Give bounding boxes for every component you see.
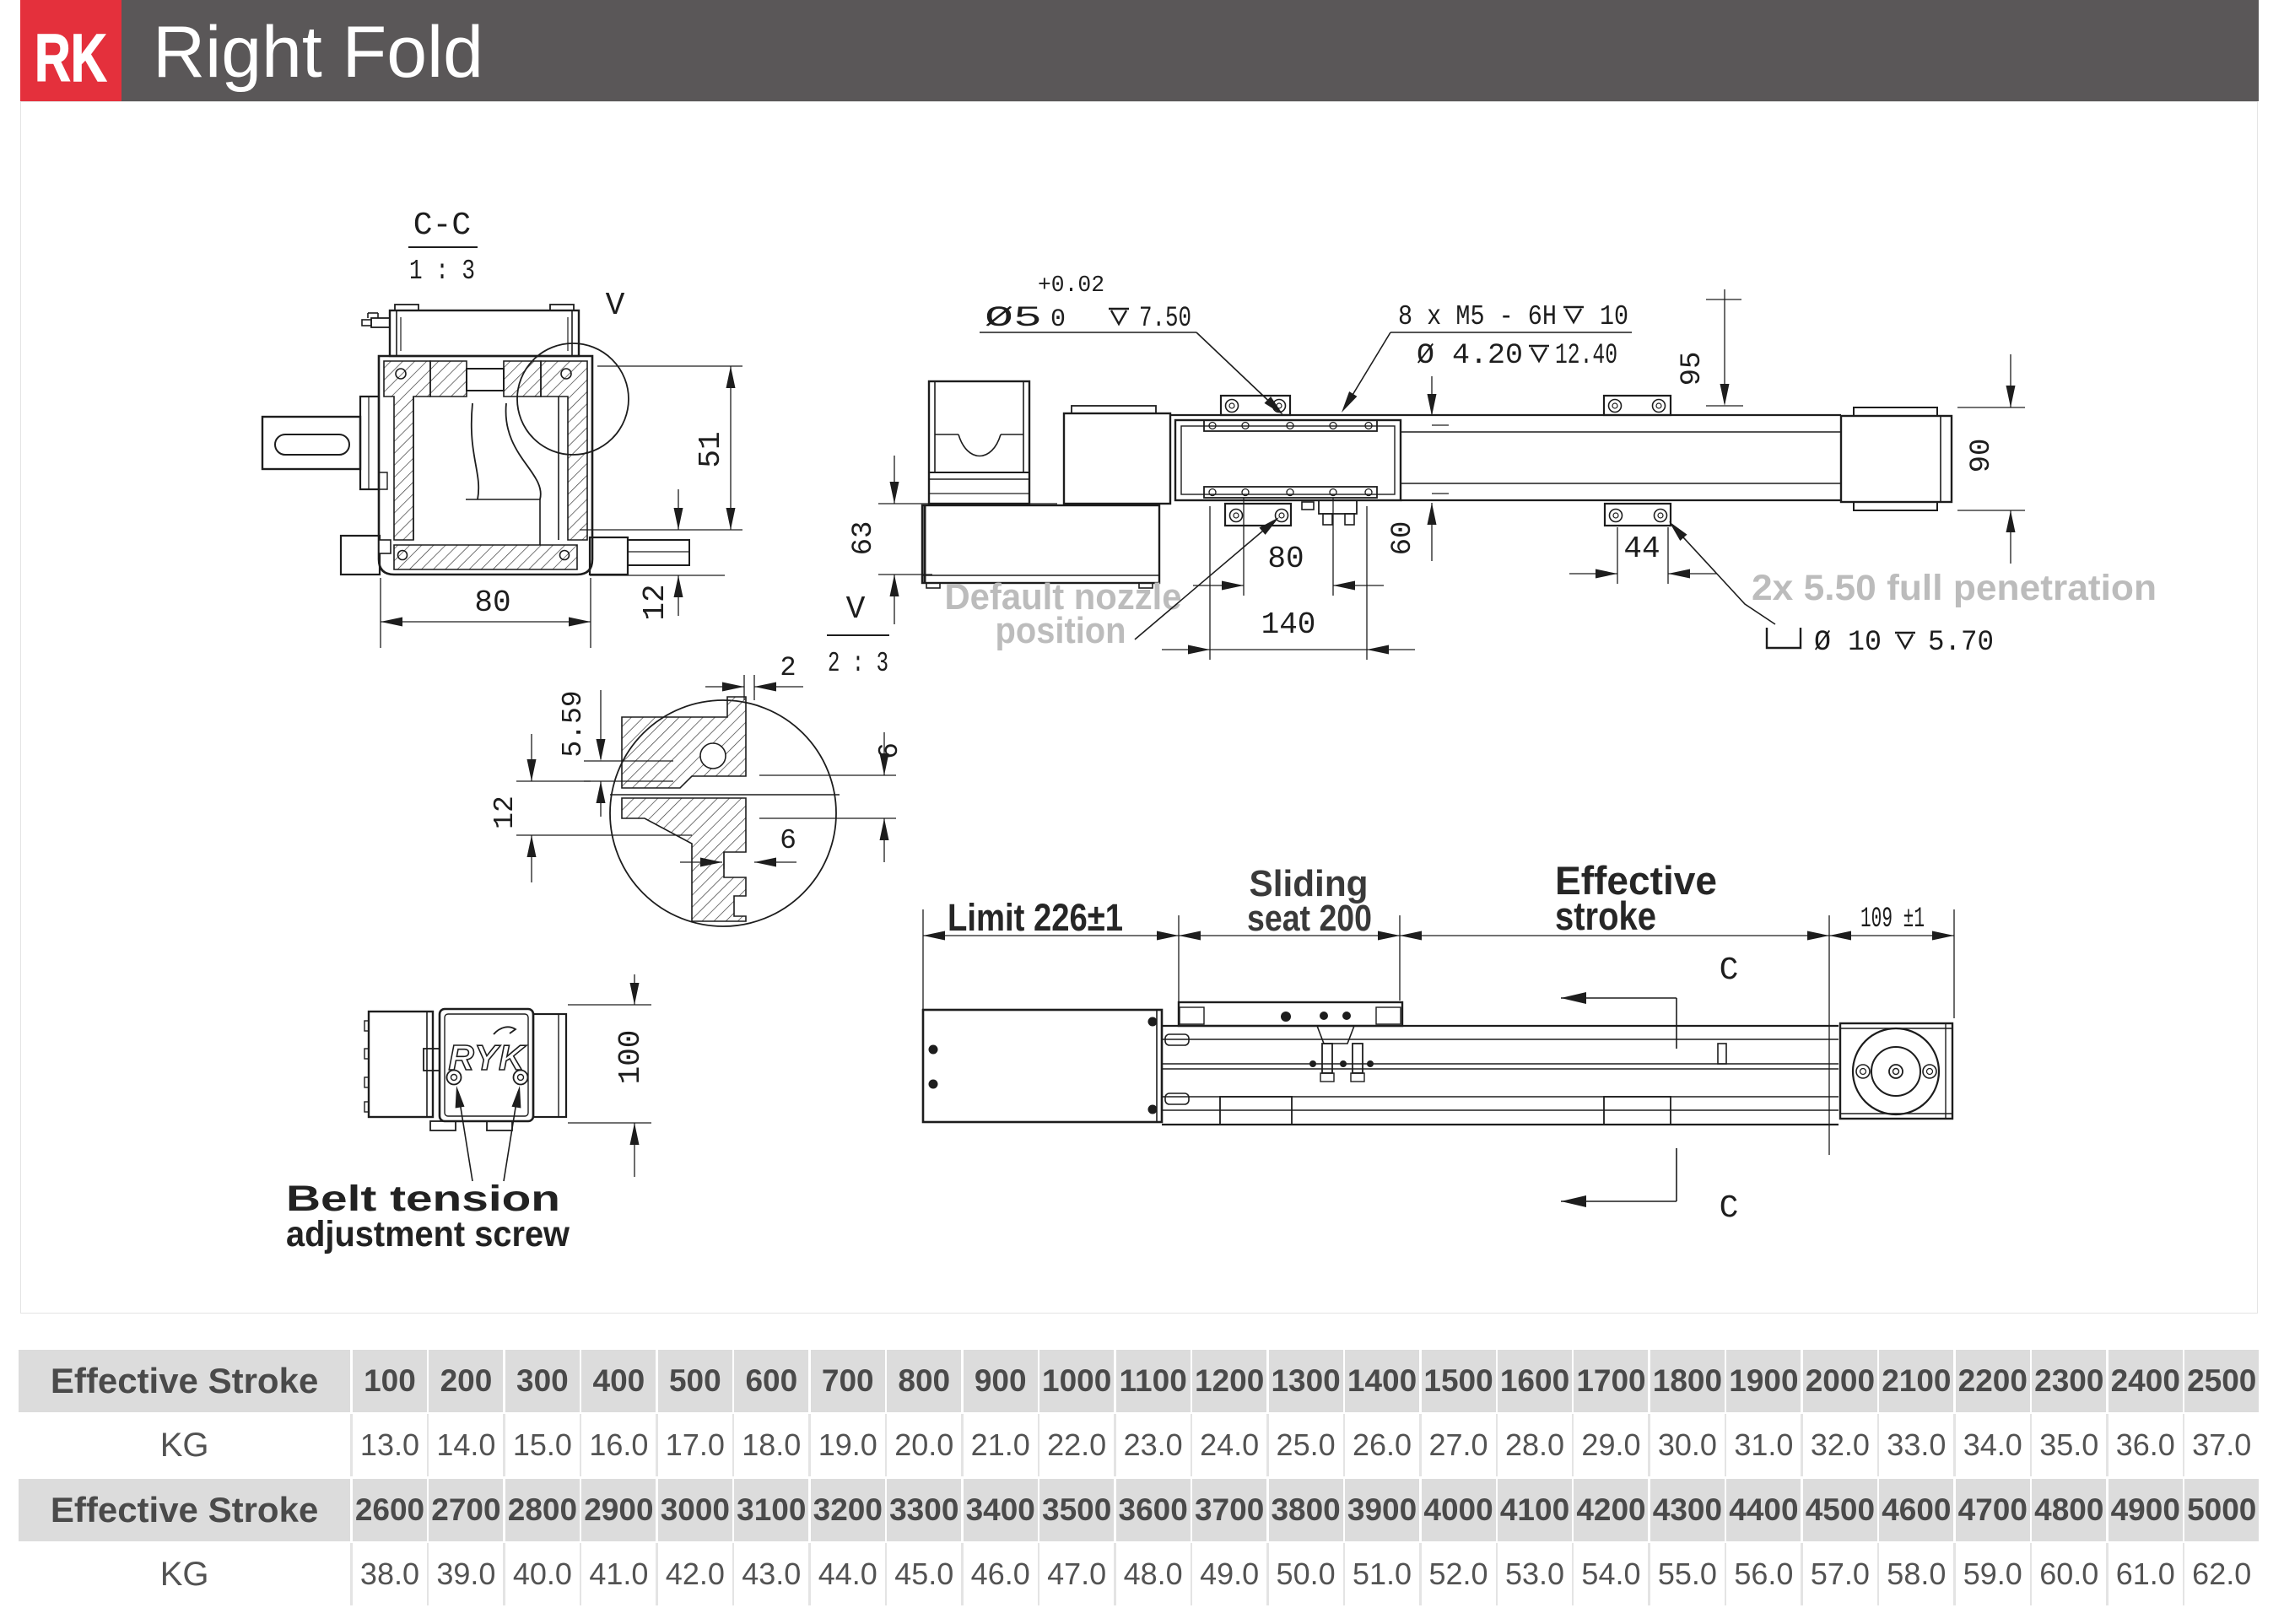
svg-text:Belt tension: Belt tension [286, 1179, 560, 1219]
svg-text:60: 60 [1387, 521, 1419, 556]
svg-text:10: 10 [1600, 301, 1628, 332]
svg-text:adjustment screw: adjustment screw [286, 1214, 570, 1254]
svg-text:5.59: 5.59 [558, 690, 589, 757]
svg-text:V: V [606, 288, 625, 324]
svg-text:+0.02: +0.02 [1038, 273, 1104, 299]
svg-text:stroke: stroke [1555, 893, 1656, 938]
svg-text:90: 90 [1966, 439, 1998, 473]
svg-text:100: 100 [613, 1030, 648, 1085]
svg-text:Ø 10: Ø 10 [1814, 627, 1882, 659]
svg-text:80: 80 [474, 585, 510, 620]
svg-text:12.40: 12.40 [1555, 340, 1617, 372]
svg-text:44: 44 [1623, 531, 1660, 566]
svg-text:63: 63 [848, 521, 880, 556]
svg-text:RYK: RYK [449, 1038, 527, 1077]
svg-text:6: 6 [780, 825, 796, 856]
svg-text:2 : 3: 2 : 3 [828, 648, 888, 679]
svg-text:140: 140 [1261, 607, 1316, 642]
svg-text:7.50: 7.50 [1139, 303, 1191, 335]
svg-text:2x 5.50 full penetration: 2x 5.50 full penetration [1752, 568, 2157, 608]
svg-text:2: 2 [780, 652, 796, 683]
svg-text:5.70: 5.70 [1928, 627, 1994, 659]
svg-text:position: position [996, 610, 1126, 651]
svg-text:51: 51 [694, 431, 728, 467]
svg-text:C: C [1720, 952, 1739, 989]
svg-text:80: 80 [1267, 542, 1304, 576]
svg-text:8 x M5 - 6H: 8 x M5 - 6H [1398, 301, 1557, 332]
svg-text:V: V [846, 591, 866, 628]
svg-text:6: 6 [874, 742, 905, 759]
svg-text:0: 0 [1050, 305, 1066, 334]
svg-text:Limit 226±1: Limit 226±1 [948, 896, 1123, 939]
svg-text:95: 95 [1677, 352, 1709, 386]
svg-text:C-C: C-C [413, 208, 471, 244]
svg-text:12: 12 [489, 796, 521, 829]
svg-text:1 : 3: 1 : 3 [409, 256, 475, 287]
svg-text:109 ±1: 109 ±1 [1860, 904, 1925, 936]
svg-text:12: 12 [638, 584, 672, 620]
svg-text:Ø 4.20: Ø 4.20 [1417, 340, 1523, 372]
svg-text:Ø5: Ø5 [985, 303, 1042, 335]
svg-text:C: C [1720, 1190, 1739, 1227]
svg-text:seat 200: seat 200 [1247, 898, 1372, 939]
